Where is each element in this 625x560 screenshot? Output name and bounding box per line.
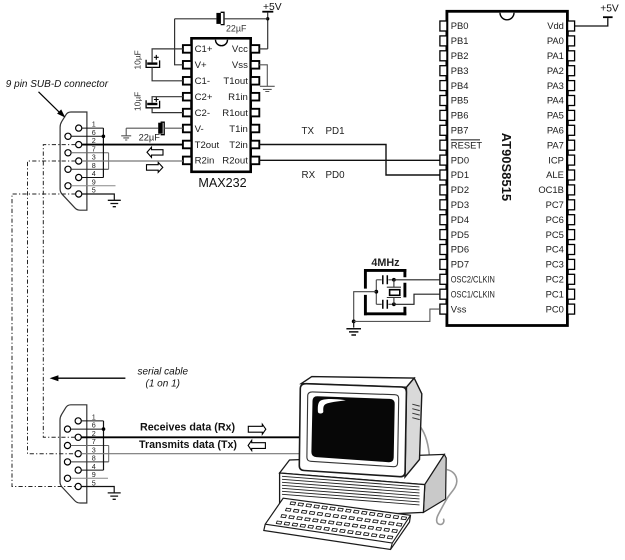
svg-text:PD4: PD4 [451,214,469,225]
svg-text:C1-: C1- [195,76,210,87]
svg-text:Transmits data (Tx): Transmits data (Tx) [139,439,237,451]
svg-text:PC5: PC5 [546,229,564,240]
svg-text:C1+: C1+ [195,44,213,55]
svg-text:PA2: PA2 [547,65,564,76]
svg-text:OC1B: OC1B [538,184,564,195]
svg-text:Receives data (Rx): Receives data (Rx) [140,422,235,434]
svg-text:PD3: PD3 [451,199,469,210]
svg-text:4MHz: 4MHz [371,257,400,269]
svg-text:AT90S8515: AT90S8515 [499,133,513,202]
svg-text:PA7: PA7 [547,139,564,150]
svg-text:PC2: PC2 [546,274,564,285]
svg-text:PA4: PA4 [547,95,564,106]
svg-text:PC4: PC4 [546,244,564,255]
svg-text:OSC2/CLKIN: OSC2/CLKIN [451,274,495,285]
svg-text:R1in: R1in [228,92,248,103]
svg-text:PC0: PC0 [546,303,564,314]
svg-text:PC7: PC7 [546,199,564,210]
svg-text:PC6: PC6 [546,214,564,225]
svg-text:PD7: PD7 [451,259,469,270]
svg-text:RESET: RESET [451,139,483,150]
svg-text:(1 on 1): (1 on 1) [146,379,180,390]
svg-text:+5V: +5V [600,3,619,14]
svg-text:OSC1/CLKIN: OSC1/CLKIN [451,288,495,299]
svg-text:Vss: Vss [451,303,467,314]
svg-text:V+: V+ [195,60,207,71]
svg-text:PB6: PB6 [451,110,469,121]
svg-text:R1out: R1out [222,108,248,119]
svg-text:Vss: Vss [232,60,248,71]
svg-text:T2out: T2out [195,140,220,151]
svg-text:ICP: ICP [548,154,564,165]
svg-text:PD5: PD5 [451,229,469,240]
svg-text:PA3: PA3 [547,80,564,91]
svg-text:PB0: PB0 [451,20,469,31]
svg-text:PA1: PA1 [547,50,564,61]
svg-text:PD1: PD1 [326,126,345,137]
svg-text:PB3: PB3 [451,65,469,76]
svg-text:PB7: PB7 [451,125,469,136]
svg-text:TX: TX [302,126,315,137]
svg-text:PD1: PD1 [451,169,469,180]
svg-text:R2in: R2in [195,156,215,167]
svg-text:R2out: R2out [222,156,248,167]
svg-text:T1out: T1out [223,76,248,87]
svg-text:PC3: PC3 [546,259,564,270]
svg-text:PA6: PA6 [547,125,564,136]
svg-text:5: 5 [92,186,96,195]
svg-text:10µF: 10µF [133,92,143,111]
svg-text:PB5: PB5 [451,95,469,106]
svg-text:C2-: C2- [195,108,210,119]
svg-text:T2in: T2in [229,140,248,151]
svg-text:V-: V- [195,124,204,135]
svg-text:Vdd: Vdd [547,20,564,31]
svg-text:22µF: 22µF [139,132,161,142]
svg-text:PB1: PB1 [451,35,469,46]
svg-text:PB2: PB2 [451,50,469,61]
svg-text:PA0: PA0 [547,35,564,46]
svg-text:ALE: ALE [546,169,564,180]
svg-text:MAX232: MAX232 [198,176,246,190]
svg-text:C2+: C2+ [195,92,213,103]
svg-text:serial cable: serial cable [138,367,189,378]
svg-text:PD0: PD0 [326,170,346,181]
svg-text:PA5: PA5 [547,110,564,121]
svg-text:9 pin SUB-D connector: 9 pin SUB-D connector [6,79,109,90]
svg-text:PC1: PC1 [546,288,564,299]
svg-text:PD2: PD2 [451,184,469,195]
svg-text:PD0: PD0 [451,154,469,165]
svg-text:10µF: 10µF [133,50,143,69]
svg-text:PB4: PB4 [451,80,469,91]
svg-text:RX: RX [302,170,316,181]
svg-text:PD6: PD6 [451,244,469,255]
svg-text:T1in: T1in [229,124,248,135]
svg-text:22µF: 22µF [226,23,247,33]
svg-text:Vcc: Vcc [232,44,248,55]
